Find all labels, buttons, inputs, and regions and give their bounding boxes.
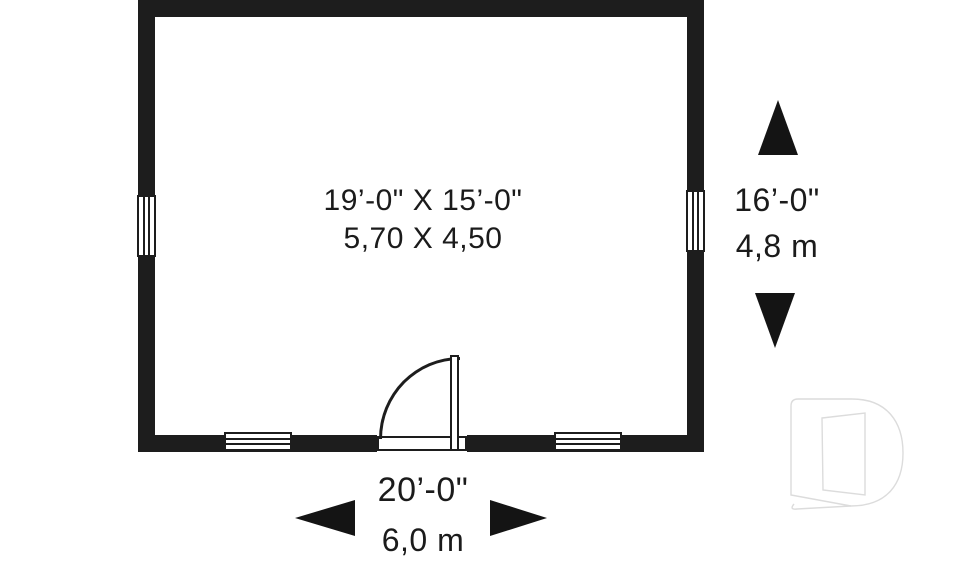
depth-arrow-up-icon <box>758 100 798 155</box>
width-dimension-metric: 6,0 m <box>338 522 508 559</box>
d-open-door-logo-icon <box>785 393 910 518</box>
depth-dimension-metric: 4,8 m <box>713 228 841 265</box>
window-bottom-left-icon <box>224 432 292 451</box>
window-right-icon <box>686 190 705 252</box>
depth-arrow-down-icon <box>755 293 795 348</box>
depth-dimension-imperial: 16’-0" <box>713 182 841 219</box>
window-bottom-right-icon <box>554 432 622 451</box>
width-arrow-right-icon <box>490 500 547 536</box>
width-dimension-imperial: 20’-0" <box>338 471 508 510</box>
room-size-metric: 5,70 X 4,50 <box>248 222 598 256</box>
door-leaf-icon <box>450 355 459 451</box>
room-size-imperial: 19’-0" X 15’-0" <box>248 184 598 218</box>
window-left-icon <box>137 195 156 257</box>
